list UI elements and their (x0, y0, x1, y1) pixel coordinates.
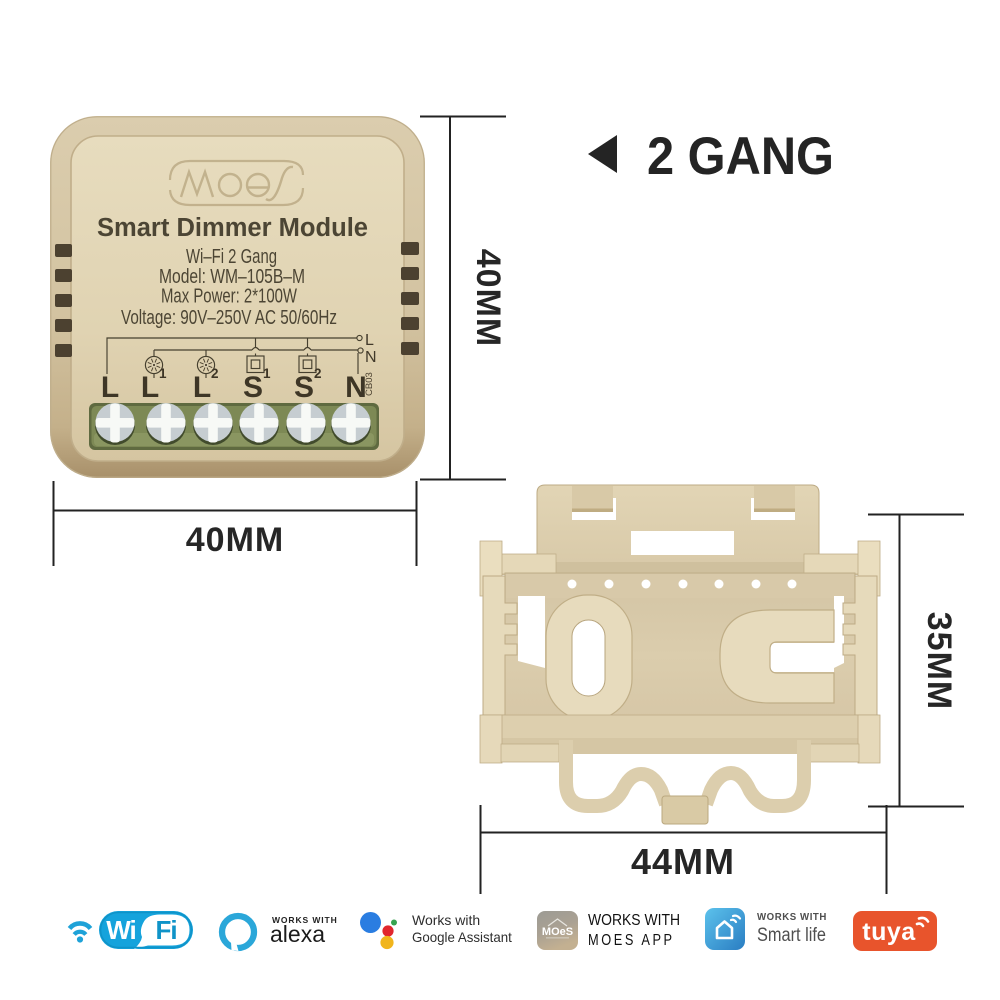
svg-text:1: 1 (159, 366, 167, 381)
svg-text:40MM: 40MM (186, 521, 284, 559)
svg-text:MOeS: MOeS (542, 926, 573, 938)
svg-text:L: L (101, 371, 119, 404)
svg-text:40MM: 40MM (469, 249, 507, 347)
svg-text:L: L (365, 332, 374, 349)
svg-text:35MM: 35MM (920, 612, 958, 710)
svg-text:Fi: Fi (155, 915, 176, 945)
svg-text:Voltage: 90V–250V AC 50/60Hz: Voltage: 90V–250V AC 50/60Hz (121, 306, 337, 329)
svg-text:Wi: Wi (106, 915, 136, 945)
svg-text:CB03: CB03 (364, 372, 375, 396)
svg-text:Smart Dimmer Module: Smart Dimmer Module (97, 214, 368, 242)
svg-text:2 GANG: 2 GANG (647, 130, 834, 186)
svg-text:S: S (294, 371, 314, 404)
svg-text:44MM: 44MM (631, 841, 735, 882)
svg-text:N: N (365, 349, 377, 366)
svg-text:2: 2 (211, 366, 219, 381)
svg-text:tuya: tuya (862, 918, 916, 946)
svg-text:2: 2 (314, 366, 322, 381)
svg-text:L: L (141, 371, 159, 404)
svg-text:S: S (243, 371, 263, 404)
svg-text:Max Power: 2*100W: Max Power: 2*100W (161, 285, 297, 308)
svg-text:L: L (193, 371, 211, 404)
svg-text:1: 1 (263, 366, 271, 381)
